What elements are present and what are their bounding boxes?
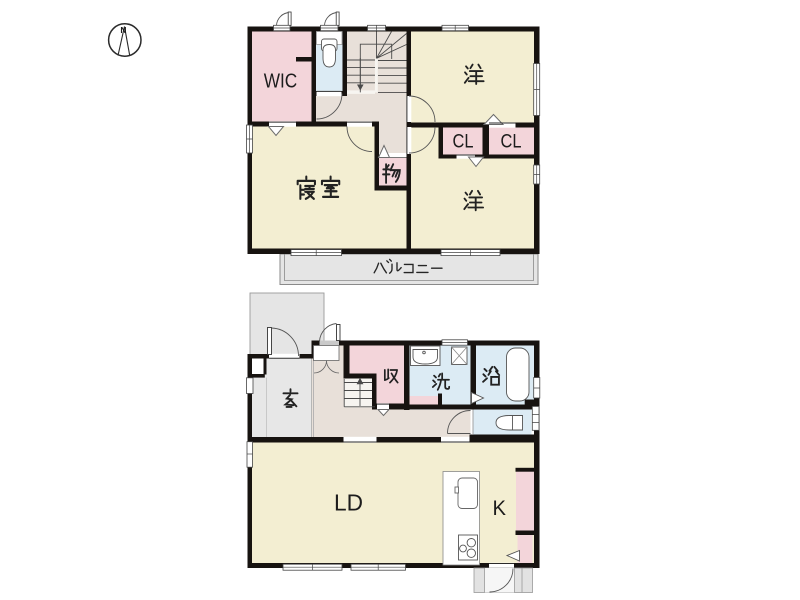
- svg-text:K: K: [493, 497, 507, 520]
- svg-text:CL: CL: [501, 131, 522, 153]
- svg-text:WIC: WIC: [264, 71, 298, 93]
- svg-text:LD: LD: [334, 490, 363, 516]
- svg-text:N: N: [120, 25, 126, 35]
- svg-text:CL: CL: [453, 131, 474, 153]
